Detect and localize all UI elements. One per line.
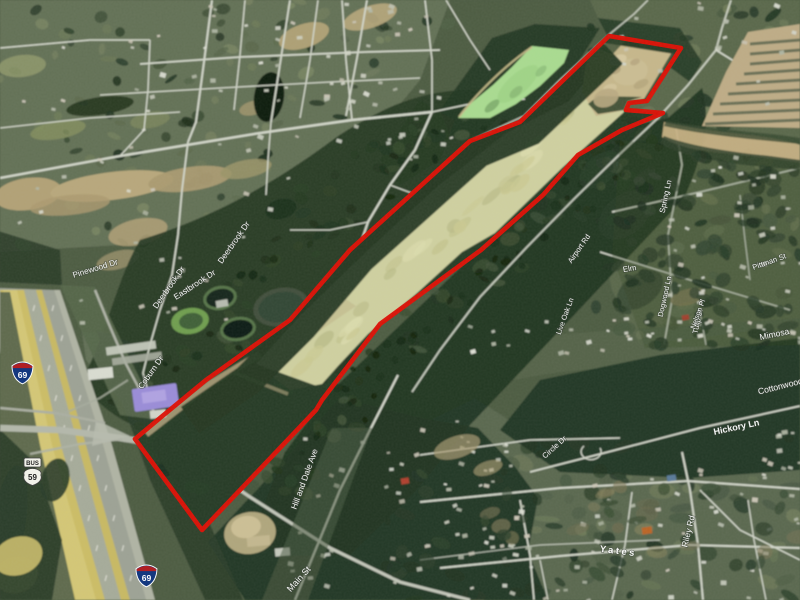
- svg-text:BUS: BUS: [26, 461, 39, 467]
- svg-text:69: 69: [18, 370, 28, 380]
- svg-text:69: 69: [142, 573, 152, 583]
- svg-text:59: 59: [28, 473, 37, 482]
